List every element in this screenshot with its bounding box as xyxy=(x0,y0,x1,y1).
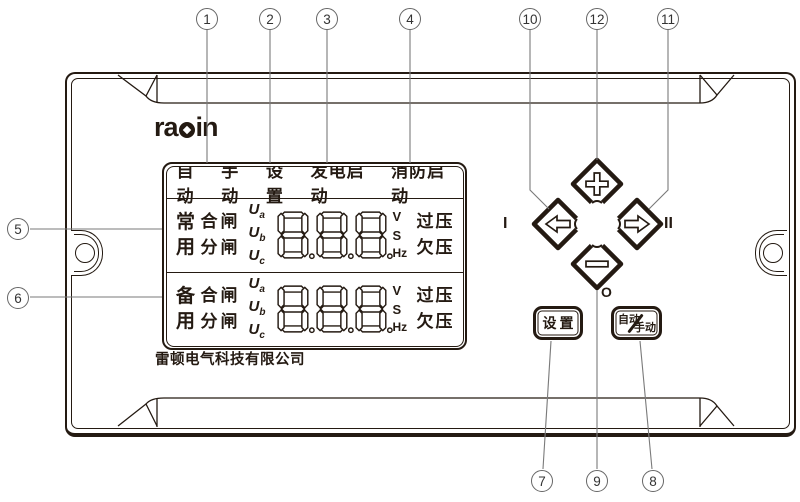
callout-12: 12 xyxy=(586,8,608,30)
seven-segment-digit xyxy=(315,284,354,334)
position-label-two: II xyxy=(664,215,673,233)
callout-3: 3 xyxy=(316,8,338,30)
voltage-status-labels: 过压 欠压 xyxy=(417,283,463,335)
position-label-one: I xyxy=(503,215,507,233)
set-button-label: 设置 xyxy=(543,313,577,333)
plus-key[interactable] xyxy=(573,160,621,216)
callout-10: 10 xyxy=(519,8,541,30)
unit-labels: V S Hz xyxy=(393,210,415,260)
minus-icon xyxy=(586,261,608,267)
source-label: 备 用 xyxy=(175,284,197,334)
position-label-o: O xyxy=(601,284,612,300)
lcd-row-backup-supply: 备 用 合闸 分闸 Ua Ub Uc V xyxy=(167,273,463,346)
minus-key[interactable] xyxy=(573,232,621,288)
seven-segment-digit xyxy=(276,210,315,260)
auto-manual-button[interactable]: 自动 手动 xyxy=(611,306,662,340)
logo-text-suffix: in xyxy=(196,112,218,143)
logo-text-prefix: ra xyxy=(154,112,178,143)
callout-9: 9 xyxy=(586,470,608,492)
seven-segment-digit xyxy=(315,210,354,260)
seven-segment-readout xyxy=(276,284,393,334)
callout-5: 5 xyxy=(7,218,29,240)
lcd-display: 自动 手动 设置 发电启动 消防启动 常 用 合闸 分闸 Ua Ub Uc xyxy=(162,162,467,350)
screw-hole-left xyxy=(75,243,95,263)
seven-segment-digit xyxy=(354,284,393,334)
callout-11: 11 xyxy=(657,8,679,30)
seven-segment-digit xyxy=(354,210,393,260)
voltage-status-labels: 过压 欠压 xyxy=(417,209,463,261)
lcd-mode-indicators: 自动 手动 设置 发电启动 消防启动 xyxy=(167,167,463,199)
phase-voltage-labels: Ua Ub Uc xyxy=(249,201,276,270)
callout-7: 7 xyxy=(531,470,553,492)
callout-4: 4 xyxy=(399,8,421,30)
source-label: 常 用 xyxy=(175,210,197,260)
lcd-row-normal-supply: 常 用 合闸 分闸 Ua Ub Uc V xyxy=(167,199,463,273)
brand-logo: rain xyxy=(154,112,218,143)
seven-segment-readout xyxy=(276,210,393,260)
callout-1: 1 xyxy=(196,8,218,30)
callout-8: 8 xyxy=(642,470,664,492)
set-button[interactable]: 设置 xyxy=(533,306,583,340)
switch-state-labels: 合闸 分闸 xyxy=(201,283,247,335)
seven-segment-digit xyxy=(276,284,315,334)
company-name: 雷顿电气科技有限公司 xyxy=(155,348,305,369)
callout-2: 2 xyxy=(259,8,281,30)
left-arrow-key[interactable] xyxy=(534,200,590,248)
callout-6: 6 xyxy=(7,287,29,309)
right-arrow-key[interactable] xyxy=(605,200,661,248)
phase-voltage-labels: Ua Ub Uc xyxy=(249,275,276,344)
diagram-canvas: rain 自动 手动 设置 发电启动 消防启动 常 用 合闸 分闸 xyxy=(0,0,800,502)
screw-hole-right xyxy=(763,243,783,263)
logo-shield-icon xyxy=(179,122,195,138)
manual-label: 手动 xyxy=(634,319,656,335)
unit-labels: V S Hz xyxy=(393,284,415,334)
switch-state-labels: 合闸 分闸 xyxy=(201,209,247,261)
